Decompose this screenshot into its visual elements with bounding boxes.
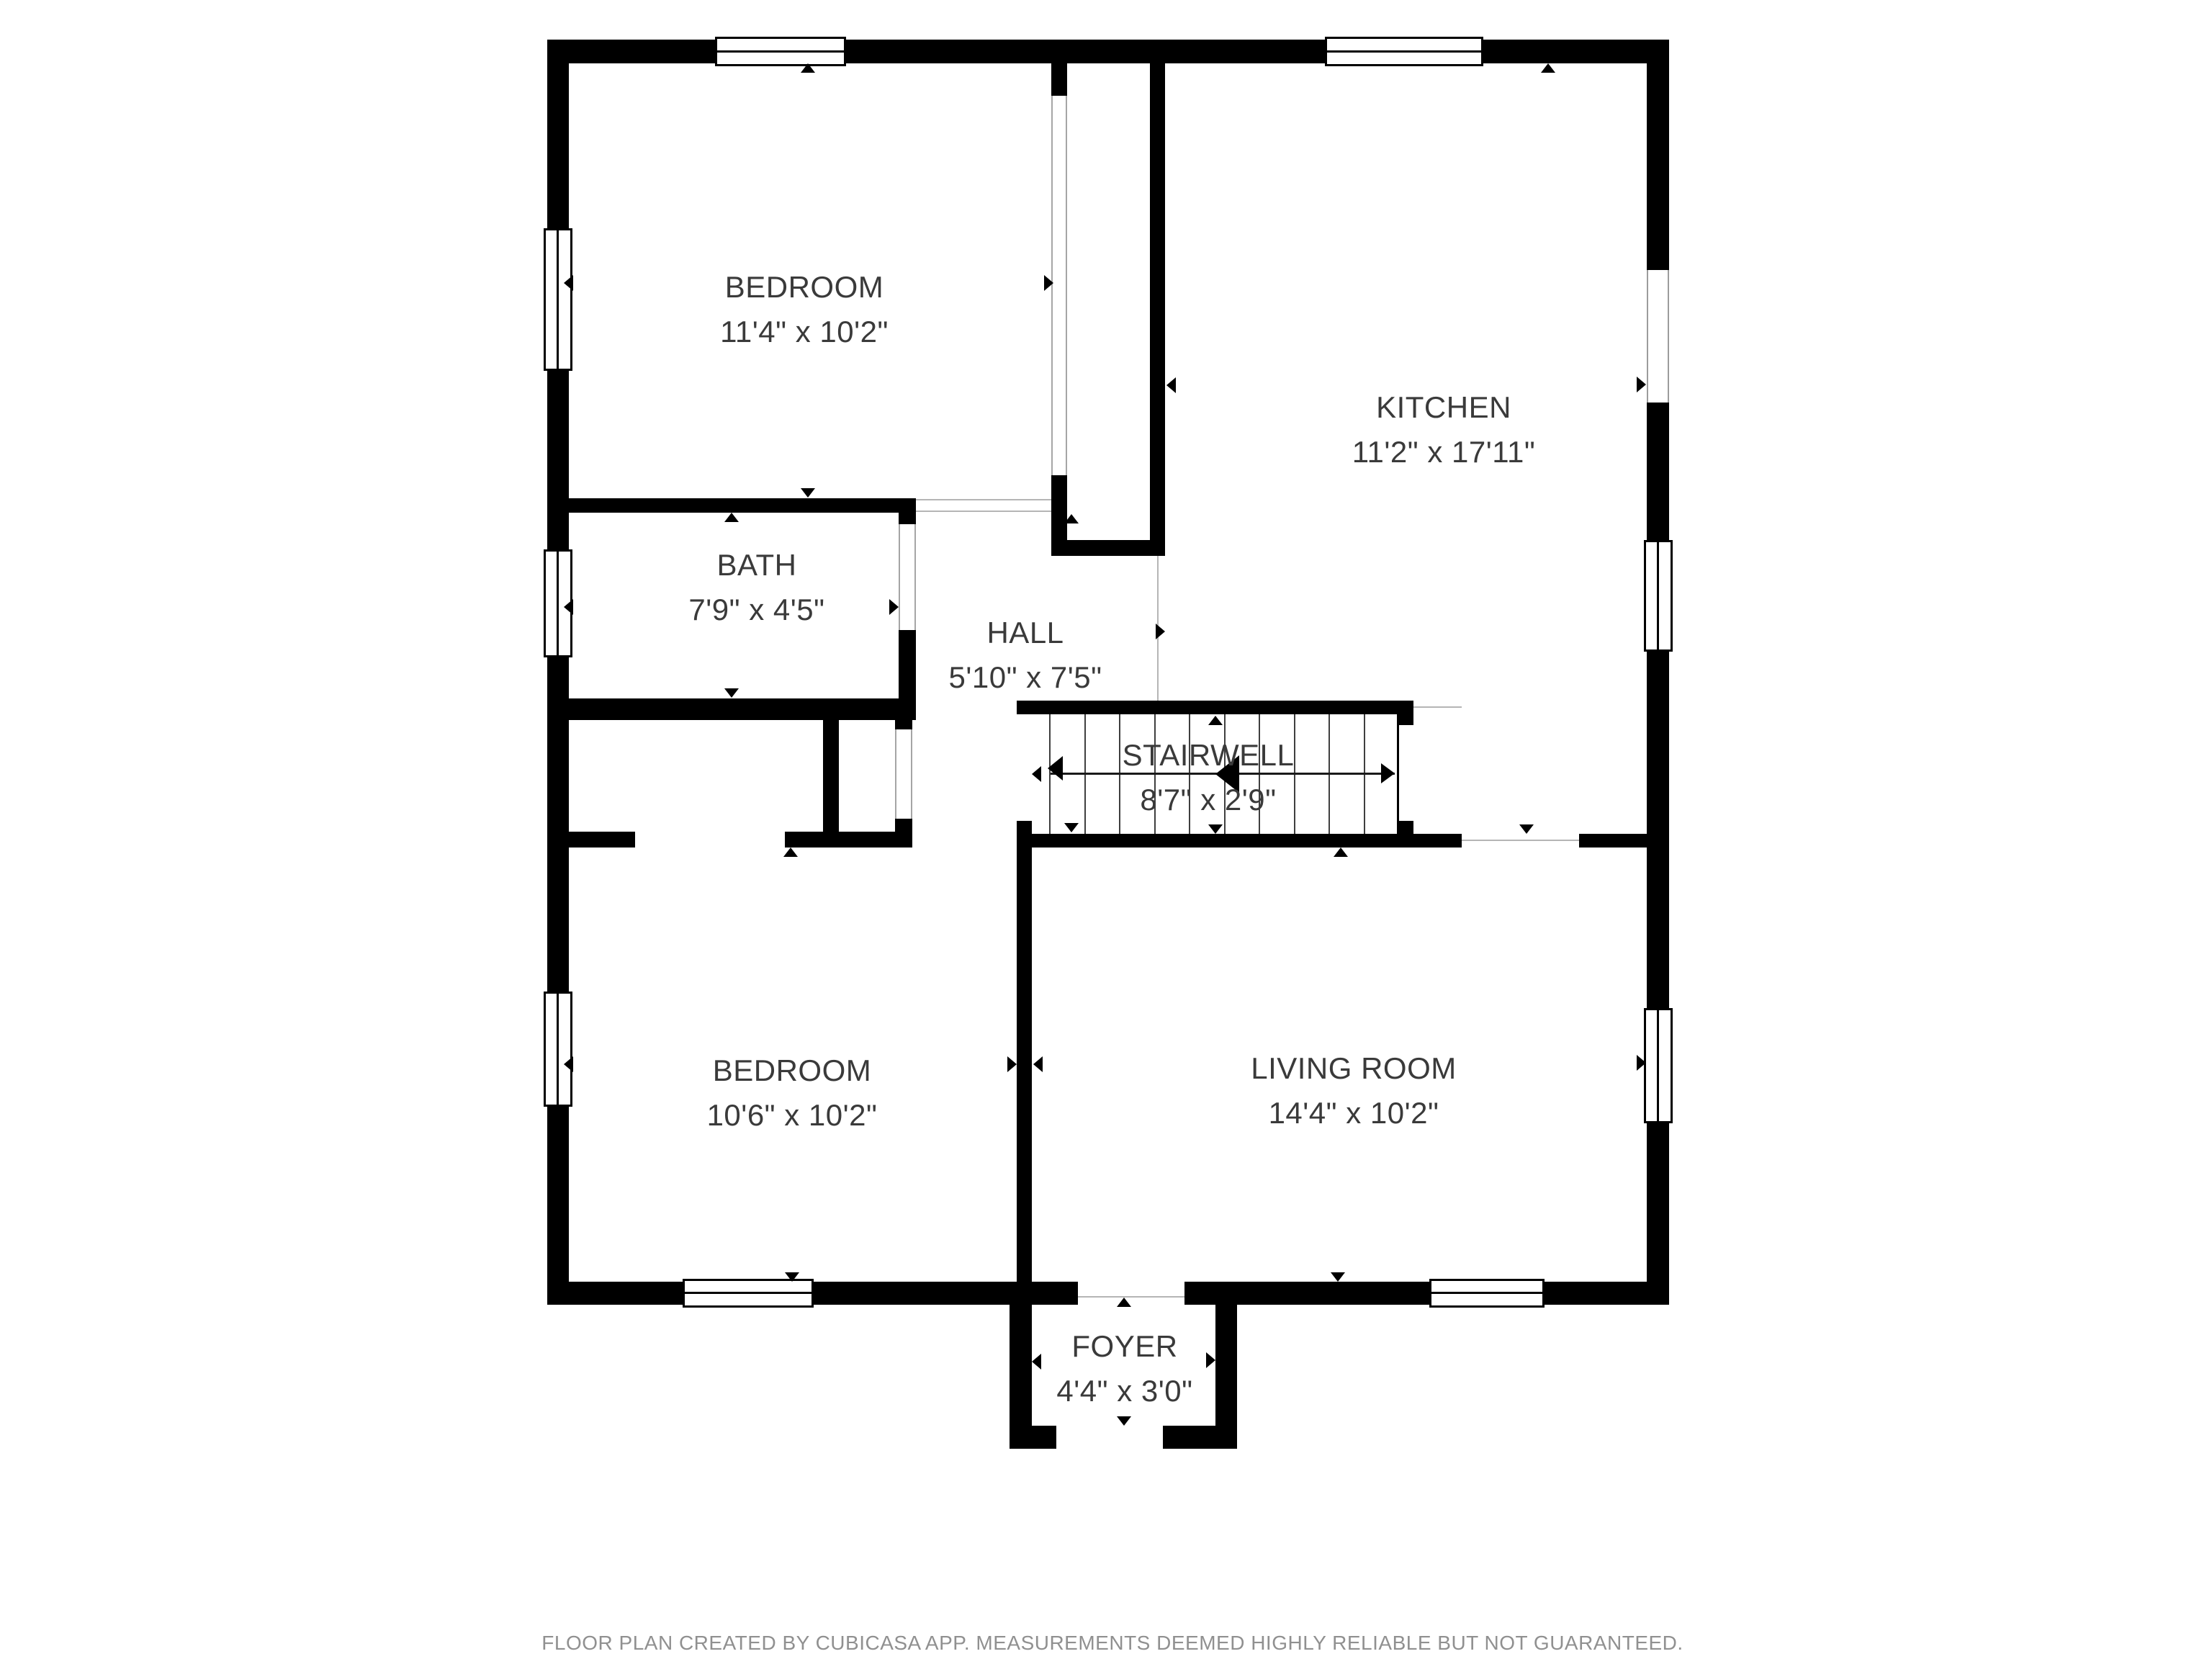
room-name: FOYER — [1056, 1324, 1192, 1369]
window-pane-line — [1657, 1010, 1659, 1122]
marker-triangle-right-icon — [889, 599, 899, 615]
room-name: BATH — [688, 543, 824, 588]
room-name: STAIRWELL — [1123, 733, 1295, 778]
stairwell-stub-left — [1017, 821, 1032, 848]
room-name: LIVING ROOM — [1251, 1046, 1457, 1091]
room-label-stairwell: STAIRWELL 8'7" x 2'9" — [1123, 733, 1295, 822]
marker-triangle-down-icon — [1117, 1416, 1131, 1426]
marker-triangle-up-icon — [724, 513, 739, 522]
bath-wall-north — [569, 498, 916, 513]
closet-wall-bottom — [1051, 540, 1165, 556]
window-pane-line — [557, 551, 559, 656]
bath-door-opening — [899, 524, 916, 630]
stair-right-edge — [1397, 714, 1399, 834]
room-label-bedroom-2: BEDROOM 10'6" x 10'2" — [707, 1048, 878, 1138]
window-pane-line — [716, 50, 845, 53]
room-dims: 7'9" x 4'5" — [688, 588, 824, 632]
bath-wall-east-upper — [899, 513, 916, 524]
window-pane-line — [684, 1292, 812, 1294]
window-kitchen-top — [1325, 37, 1483, 66]
marker-triangle-up-icon — [1117, 1298, 1131, 1307]
window-pane-line — [557, 993, 559, 1105]
bedroom2-wall-north-a — [569, 832, 635, 848]
stairwell-stub-right-top — [1399, 701, 1413, 725]
hall-closet-door — [895, 729, 912, 819]
marker-triangle-right-icon — [1637, 1055, 1646, 1071]
window-living-bottom — [1429, 1279, 1545, 1308]
bedroom2-living-divider — [1017, 848, 1032, 1282]
room-label-kitchen: KITCHEN 11'2" x 17'11" — [1352, 385, 1535, 475]
kitchen-living-boundary — [1462, 840, 1579, 841]
marker-triangle-up-icon — [1064, 514, 1079, 523]
kitchen-landing-boundary — [1413, 706, 1462, 708]
bedroom1-hall-boundary-a — [916, 499, 1051, 500]
hall-closet-wall-west — [823, 720, 839, 832]
room-name: HALL — [949, 611, 1102, 655]
room-dims: 14'4" x 10'2" — [1251, 1091, 1457, 1136]
window-bedroom1-left — [544, 228, 572, 371]
footer-disclaimer: FLOOR PLAN CREATED BY CUBICASA APP. MEAS… — [541, 1632, 1683, 1655]
stairwell-wall-north — [1017, 701, 1413, 714]
marker-triangle-up-icon — [1541, 63, 1555, 73]
window-kitchen-right-lower — [1644, 540, 1673, 652]
marker-triangle-left-icon — [1166, 377, 1176, 393]
marker-triangle-down-icon — [1519, 824, 1534, 834]
marker-triangle-right-icon — [1637, 377, 1646, 392]
room-label-foyer: FOYER 4'4" x 3'0" — [1056, 1324, 1192, 1413]
hall-closet-stub-bottom — [895, 819, 912, 848]
marker-triangle-left-icon — [564, 275, 573, 291]
window-bedroom2-bottom — [683, 1279, 814, 1308]
marker-triangle-right-icon — [1044, 275, 1053, 291]
stairwell-stub-right-bot — [1399, 821, 1413, 848]
room-dims: 11'2" x 17'11" — [1352, 430, 1535, 475]
room-label-bedroom-1: BEDROOM 11'4" x 10'2" — [720, 265, 889, 354]
floor-plan: BEDROOM 11'4" x 10'2" KITCHEN 11'2" x 17… — [0, 0, 2212, 1659]
window-bedroom2-left — [544, 992, 572, 1107]
room-name: BEDROOM — [720, 265, 889, 310]
marker-triangle-up-icon — [801, 63, 815, 73]
bath-wall-south — [569, 698, 916, 720]
marker-triangle-right-icon — [1206, 1352, 1215, 1368]
marker-triangle-down-icon — [785, 1272, 799, 1282]
room-dims: 4'4" x 3'0" — [1056, 1369, 1192, 1413]
marker-triangle-right-icon — [1156, 624, 1165, 639]
room-label-hall: HALL 5'10" x 7'5" — [949, 611, 1102, 700]
bedroom1-hall-boundary-b — [916, 511, 1051, 512]
window-bedroom1-top — [715, 37, 846, 66]
marker-triangle-down-icon — [1208, 824, 1223, 834]
window-living-right — [1644, 1008, 1673, 1123]
kitchen-living-wall-east — [1579, 834, 1647, 848]
window-pane-line — [1431, 1292, 1543, 1294]
foyer-entry-opening — [1078, 1282, 1184, 1305]
kitchen-wall-west — [1150, 63, 1165, 556]
marker-triangle-down-icon — [1331, 1272, 1345, 1282]
marker-triangle-left-icon — [1032, 1354, 1041, 1370]
marker-triangle-left-icon — [1033, 1056, 1043, 1072]
marker-triangle-left-icon — [564, 1056, 573, 1072]
marker-triangle-left-icon — [1032, 766, 1041, 782]
stairwell-wall-south — [1017, 834, 1462, 848]
front-door-opening — [1056, 1426, 1163, 1449]
marker-triangle-up-icon — [783, 848, 798, 857]
room-label-bath: BATH 7'9" x 4'5" — [688, 543, 824, 632]
bath-wall-east-lower — [899, 630, 916, 698]
closet-wall-stub-top — [1051, 63, 1067, 96]
room-dims: 10'6" x 10'2" — [707, 1093, 878, 1138]
room-dims: 8'7" x 2'9" — [1123, 778, 1295, 822]
foyer-boundary-line — [1078, 1296, 1184, 1298]
room-name: KITCHEN — [1352, 385, 1535, 430]
window-kitchen-right-upper — [1647, 270, 1669, 403]
marker-triangle-down-icon — [1064, 823, 1079, 832]
closet-wall-stub-bottom — [1051, 475, 1067, 540]
window-pane-line — [1326, 50, 1482, 53]
marker-triangle-down-icon — [801, 488, 815, 498]
marker-triangle-left-icon — [564, 599, 573, 615]
marker-triangle-right-icon — [1007, 1056, 1017, 1072]
window-pane-line — [1657, 541, 1659, 650]
room-dims: 11'4" x 10'2" — [720, 310, 889, 354]
room-label-living-room: LIVING ROOM 14'4" x 10'2" — [1251, 1046, 1457, 1136]
stair-arrowhead-right-icon — [1381, 763, 1395, 783]
bedroom1-closet-door — [1051, 96, 1067, 475]
window-pane-line — [557, 230, 559, 369]
marker-triangle-up-icon — [1334, 848, 1348, 857]
bedroom2-wall-north-b — [785, 832, 895, 848]
marker-triangle-up-icon — [1208, 716, 1223, 725]
room-dims: 5'10" x 7'5" — [949, 655, 1102, 700]
stair-arrowhead-left-icon — [1048, 756, 1063, 781]
hall-closet-stub-top — [895, 720, 912, 729]
marker-triangle-down-icon — [724, 688, 739, 698]
room-name: BEDROOM — [707, 1048, 878, 1093]
